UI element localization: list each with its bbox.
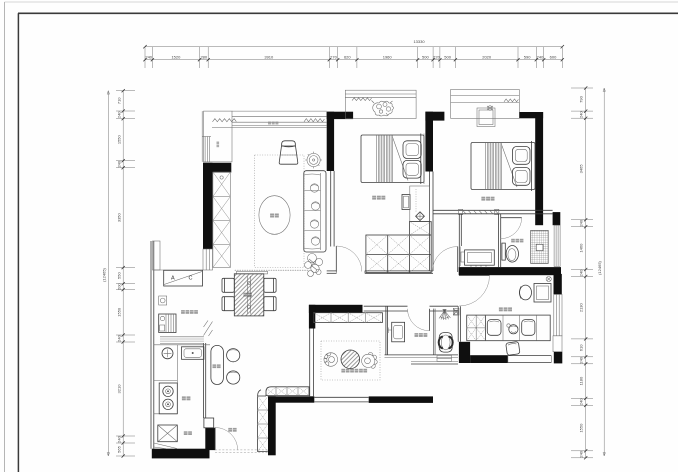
svg-text:240: 240 <box>117 334 122 341</box>
svg-text:240: 240 <box>579 356 584 363</box>
svg-text:2130: 2130 <box>579 302 584 312</box>
svg-text:240: 240 <box>579 450 584 457</box>
svg-text:240: 240 <box>579 398 584 405</box>
svg-text:600: 600 <box>550 54 557 59</box>
svg-text:200: 200 <box>117 282 122 289</box>
svg-text:500: 500 <box>444 54 451 59</box>
svg-text:500: 500 <box>422 54 429 59</box>
svg-text:240: 240 <box>117 160 122 167</box>
svg-text:710: 710 <box>117 97 122 104</box>
svg-text:C: C <box>189 276 193 282</box>
svg-text:270: 270 <box>330 54 337 59</box>
svg-text:(12465): (12465) <box>102 267 107 281</box>
svg-text:2020: 2020 <box>482 54 492 59</box>
svg-text:550: 550 <box>117 271 122 278</box>
svg-text:280: 280 <box>200 54 207 59</box>
svg-text:3910: 3910 <box>264 54 274 59</box>
svg-text:590: 590 <box>524 54 531 59</box>
svg-text:1460: 1460 <box>579 243 584 253</box>
svg-text:3465: 3465 <box>579 164 584 174</box>
svg-text:790: 790 <box>579 95 584 102</box>
svg-text:220: 220 <box>433 54 440 59</box>
svg-text:3210: 3210 <box>117 384 122 394</box>
svg-text:1520: 1520 <box>171 54 181 59</box>
svg-text:565: 565 <box>117 445 122 452</box>
svg-text:240: 240 <box>537 54 544 59</box>
svg-text:240: 240 <box>145 54 152 59</box>
svg-text:240: 240 <box>117 111 122 118</box>
svg-text:13330: 13330 <box>413 39 425 44</box>
svg-text:1550: 1550 <box>117 134 122 144</box>
svg-text:3350: 3350 <box>117 212 122 222</box>
svg-text:240: 240 <box>117 435 122 442</box>
svg-text:1550: 1550 <box>579 423 584 433</box>
svg-text:620: 620 <box>344 54 351 59</box>
svg-text:610: 610 <box>579 344 584 351</box>
svg-text:1550: 1550 <box>117 307 122 317</box>
svg-text:240: 240 <box>579 219 584 226</box>
svg-text:(12465): (12465) <box>597 260 602 274</box>
svg-text:240: 240 <box>579 269 584 276</box>
svg-text:1180: 1180 <box>579 376 584 385</box>
svg-text:A: A <box>171 276 175 282</box>
svg-text:240: 240 <box>579 111 584 118</box>
svg-text:1960: 1960 <box>383 54 393 59</box>
